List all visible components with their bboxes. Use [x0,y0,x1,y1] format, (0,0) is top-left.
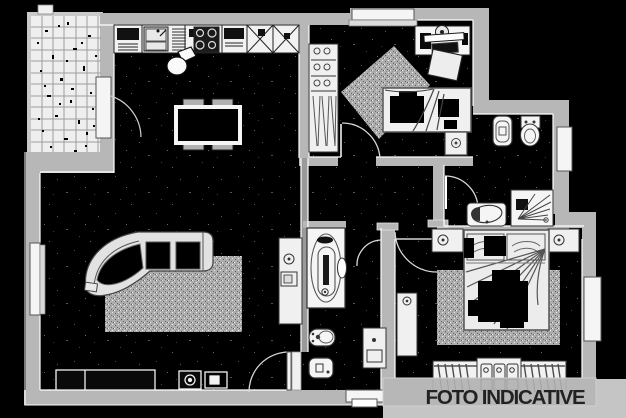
svg-text:FOTO INDICATIVE: FOTO INDICATIVE [426,386,585,409]
